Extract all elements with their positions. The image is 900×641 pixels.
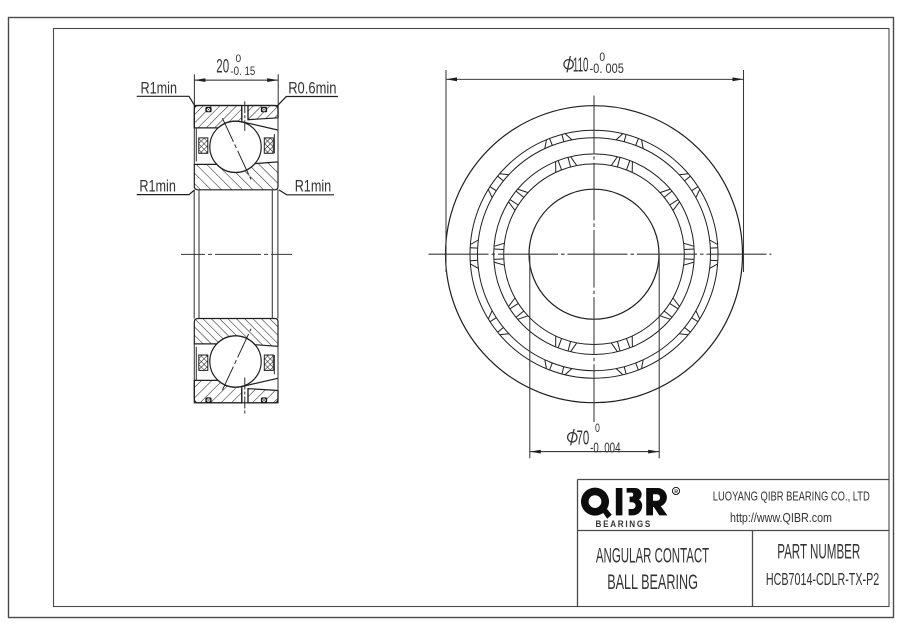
svg-text:R1min: R1min	[139, 177, 176, 195]
svg-text:110: 110	[573, 55, 589, 77]
svg-text:20: 20	[216, 56, 229, 78]
svg-text:R1min: R1min	[295, 177, 332, 195]
svg-text:R0.6min: R0.6min	[288, 80, 336, 98]
svg-text:R1min: R1min	[141, 80, 178, 98]
svg-text:LUOYANG QIBR BEARING CO., LTD: LUOYANG QIBR BEARING CO., LTD	[713, 489, 870, 504]
svg-text:0: 0	[236, 53, 242, 65]
svg-text:BALL BEARING: BALL BEARING	[607, 571, 698, 594]
svg-text:-0. 15: -0. 15	[230, 65, 255, 78]
svg-text:-0. 004: -0. 004	[590, 439, 620, 456]
svg-text:ANGULAR CONTACT: ANGULAR CONTACT	[596, 544, 709, 567]
svg-text:70: 70	[577, 428, 590, 450]
svg-text:http://www.QIBR.com: http://www.QIBR.com	[730, 510, 832, 525]
svg-text:-0. 005: -0. 005	[590, 60, 625, 76]
svg-text:HCB7014-CDLR-TX-P2: HCB7014-CDLR-TX-P2	[766, 569, 879, 589]
svg-text:R: R	[674, 489, 678, 495]
svg-text:0: 0	[595, 421, 600, 435]
svg-text:PART NUMBER: PART NUMBER	[777, 541, 860, 564]
svg-text:BEARINGS: BEARINGS	[596, 519, 653, 530]
